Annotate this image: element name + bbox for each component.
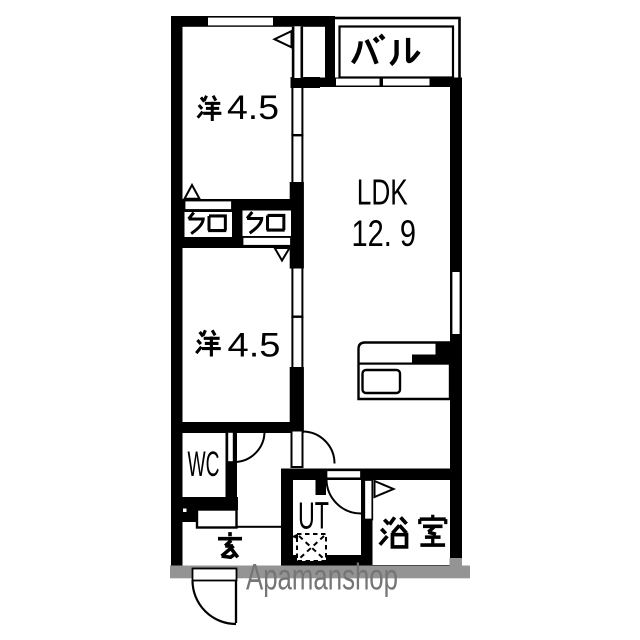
svg-text:UT: UT xyxy=(298,496,329,538)
svg-text:LDK: LDK xyxy=(357,172,408,213)
svg-text:12. 9: 12. 9 xyxy=(352,212,417,254)
svg-text:Apamanshop: Apamanshop xyxy=(246,557,398,598)
svg-text:4.5: 4.5 xyxy=(227,89,279,127)
svg-text:4.5: 4.5 xyxy=(228,327,281,365)
svg-text:WC: WC xyxy=(188,445,220,484)
